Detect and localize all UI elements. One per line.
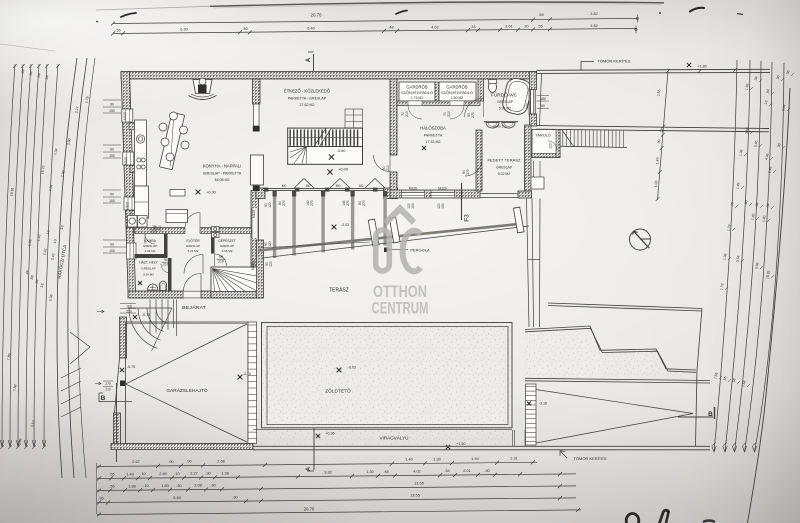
svg-text:M140 210: M140 210 [493,125,507,129]
svg-text:6.40: 6.40 [173,495,181,500]
svg-text:270: 270 [362,200,366,206]
svg-text:1.30: 1.30 [433,456,441,461]
svg-text:+0.00: +0.00 [338,167,349,172]
svg-text:3.00: 3.00 [66,138,71,145]
svg-text:.94: .94 [766,89,771,94]
svg-text:M100: M100 [124,157,128,165]
svg-text:.35: .35 [98,496,103,501]
svg-text:2.40: 2.40 [159,471,167,476]
svg-text:1.43: 1.43 [36,234,41,241]
svg-text:1.49: 1.49 [655,157,660,164]
svg-text:TÖMÖR KERÍTÉS: TÖMÖR KERÍTÉS [597,59,630,64]
svg-text:.30: .30 [777,143,782,148]
svg-text:M120: M120 [409,186,418,190]
svg-text:-0.02: -0.02 [341,223,349,227]
svg-text:KAMRA: KAMRA [144,239,157,243]
svg-text:.30: .30 [205,471,211,476]
svg-text:-0.75: -0.75 [142,313,150,317]
svg-text:1.38: 1.38 [738,149,743,156]
svg-text:.34: .34 [45,75,50,81]
svg-text:.30: .30 [232,494,238,499]
svg-text:M100: M100 [123,112,127,120]
svg-text:GARÁZSLEHAJTÓ: GARÁZSLEHAJTÓ [166,387,208,394]
svg-text:B: B [708,411,713,418]
svg-text:2.64: 2.64 [781,104,786,111]
svg-text:.30: .30 [210,483,216,488]
svg-text:.34: .34 [470,25,475,29]
svg-text:210: 210 [447,111,451,117]
svg-text:.55: .55 [109,484,114,489]
svg-text:.34: .34 [766,203,771,208]
svg-text:M0: M0 [282,184,287,188]
svg-text:.34: .34 [755,202,760,207]
svg-text:6.30: 6.30 [180,28,187,32]
svg-text:1.38: 1.38 [221,470,229,475]
svg-text:1.40: 1.40 [761,215,766,222]
svg-text:120: 120 [269,261,273,267]
svg-text:GÉPÉSZET: GÉPÉSZET [218,238,236,243]
svg-text:2.08: 2.08 [194,483,202,488]
svg-text:20.70: 20.70 [311,13,323,18]
svg-text:2.27: 2.27 [190,471,198,476]
svg-text:-0.02: -0.02 [348,366,356,370]
svg-text:CENTRUM: CENTRUM [372,300,429,318]
svg-text:VIRÁGVÁLYÚ: VIRÁGVÁLYÚ [379,435,408,441]
svg-text:16.72: 16.72 [40,165,45,174]
svg-text:4.02: 4.02 [431,25,438,29]
svg-text:270: 270 [282,200,286,206]
svg-text:.10: .10 [53,239,58,245]
svg-text:A: A [306,466,312,471]
svg-text:M0: M0 [306,184,311,188]
svg-text:.48: .48 [383,469,388,474]
svg-text:1.43: 1.43 [126,471,134,476]
svg-text:270: 270 [466,169,470,175]
svg-text:.34: .34 [37,73,42,79]
svg-text:M0: M0 [336,184,341,188]
svg-text:210: 210 [163,263,169,267]
svg-text:.12: .12 [659,128,663,133]
svg-text:3.82: 3.82 [324,469,332,474]
svg-text:M120: M120 [252,210,256,218]
svg-text:270: 270 [471,112,475,118]
svg-text:90: 90 [110,243,114,247]
svg-text:.58: .58 [732,378,737,383]
svg-text:120: 120 [268,241,272,247]
svg-text:210: 210 [549,143,553,149]
svg-text:.90: .90 [168,459,174,464]
svg-text:150: 150 [109,249,115,253]
svg-text:90: 90 [110,193,114,197]
svg-text:.30: .30 [484,468,490,473]
svg-text:3.59: 3.59 [744,127,749,134]
svg-text:2.67: 2.67 [132,459,140,464]
svg-text:GARDRÓB: GARDRÓB [446,85,467,90]
svg-text:150: 150 [411,203,415,209]
svg-text:2.27: 2.27 [74,106,79,113]
svg-text:OTTHON: OTTHON [373,283,427,301]
svg-text:1.38: 1.38 [722,253,727,260]
svg-text:5.02 M2: 5.02 M2 [498,172,510,176]
svg-text:2.90: 2.90 [60,170,65,177]
svg-text:F3: F3 [464,214,471,222]
svg-text:TERASZ: TERASZ [329,288,349,294]
svg-text:60: 60 [541,104,545,108]
svg-text:27.62 M2: 27.62 M2 [300,103,315,107]
svg-text:ZÖLDTETŐ: ZÖLDTETŐ [325,388,351,395]
svg-text:7.58: 7.58 [741,380,746,387]
svg-text:.10: .10 [140,471,146,476]
svg-text:+1.80: +1.80 [697,65,707,69]
svg-text:210: 210 [158,225,162,231]
svg-text:PERGOLA: PERGOLA [410,248,430,253]
svg-text:GRESLAP: GRESLAP [141,267,155,271]
svg-text:.18: .18 [40,283,45,289]
svg-text:5.54: 5.54 [735,255,740,262]
svg-text:18.91: 18.91 [9,187,14,196]
svg-text:270: 270 [346,200,350,206]
svg-text:170: 170 [525,103,529,108]
svg-text:GRESLAP: GRESLAP [186,244,200,248]
svg-text:M120: M120 [438,186,447,190]
svg-text:ÉTKEZŐ - KÖZLEKEDŐ: ÉTKEZŐ - KÖZLEKEDŐ [284,89,331,94]
svg-text:BEJÁRAT: BEJÁRAT [182,304,206,311]
svg-text:SZŐNYEGPADLÓ: SZŐNYEGPADLÓ [441,90,473,95]
svg-text:.90: .90 [657,139,661,144]
svg-text:3.10: 3.10 [30,420,35,427]
svg-text:.34: .34 [754,76,759,81]
svg-text:.88: .88 [30,275,35,281]
svg-text:.55: .55 [723,376,728,381]
svg-text:7.55: 7.55 [713,372,718,379]
svg-text:150: 150 [441,203,445,209]
svg-text:90: 90 [110,103,114,107]
svg-text:+0.36: +0.36 [325,432,334,436]
svg-text:FEDETT TERASZ: FEDETT TERASZ [488,159,522,163]
svg-text:210: 210 [405,111,409,117]
svg-text:.55: .55 [538,13,543,17]
svg-text:90: 90 [164,258,168,262]
svg-text:HÁZT. HELY: HÁZT. HELY [139,261,158,265]
svg-text:.34: .34 [21,69,26,75]
svg-text:GRESLAP: GRESLAP [143,244,157,248]
svg-text:GRESLAP: GRESLAP [220,244,234,248]
svg-text:.30: .30 [176,483,182,488]
svg-text:.44: .44 [25,270,30,276]
svg-text:1.86: 1.86 [27,239,32,246]
svg-text:M120: M120 [252,259,256,267]
svg-text:3.38: 3.38 [48,294,53,301]
svg-text:3.43: 3.43 [50,253,55,260]
svg-text:2.02 M2: 2.02 M2 [145,249,156,253]
svg-text:7.34: 7.34 [53,148,58,155]
svg-text:2.31: 2.31 [510,456,518,461]
svg-text:M100: M100 [126,202,130,210]
svg-text:GRESLAP - PARKETTA: GRESLAP - PARKETTA [203,172,242,176]
svg-text:GRESLAP: GRESLAP [497,100,514,104]
svg-text:.34: .34 [35,279,40,285]
svg-text:7.88: 7.88 [12,384,17,391]
svg-text:-3.50: -3.50 [337,148,347,153]
svg-text:18.95: 18.95 [765,270,770,279]
svg-text:4.02: 4.02 [413,469,421,474]
svg-text:6.40: 6.40 [307,27,314,31]
svg-text:3.94 M2: 3.94 M2 [222,249,233,253]
svg-text:B: B [101,395,106,402]
svg-text:210: 210 [105,388,111,392]
svg-text:KONYHA - NAPPALI: KONYHA - NAPPALI [203,164,242,169]
svg-text:+0.00: +0.00 [206,191,216,195]
svg-text:.10: .10 [60,225,65,231]
svg-text:.55: .55 [115,28,120,32]
svg-text:GRESLAP: GRESLAP [496,166,513,170]
svg-text:3.82: 3.82 [590,12,597,16]
svg-text:150: 150 [109,109,115,113]
svg-text:90: 90 [110,148,114,152]
svg-text:2.68: 2.68 [217,458,225,463]
svg-text:20.70: 20.70 [304,507,315,512]
svg-text:.30: .30 [776,75,781,80]
svg-text:2.42: 2.42 [42,248,47,255]
svg-text:2.46: 2.46 [767,166,772,173]
svg-text:.55: .55 [537,24,542,28]
svg-text:1.79: 1.79 [719,283,724,290]
svg-text:SZŐNYEGPADLÓ: SZŐNYEGPADLÓ [401,90,433,95]
svg-text:1.40: 1.40 [750,213,755,220]
svg-text:ELŐTÉR: ELŐTÉR [186,238,200,243]
svg-text:4.36: 4.36 [764,153,769,160]
svg-text:1.65: 1.65 [744,83,749,90]
svg-text:M0: M0 [359,184,364,188]
svg-text:2.55: 2.55 [657,89,662,96]
svg-text:210: 210 [218,260,224,264]
svg-text:PARKETTA: PARKETTA [424,134,443,138]
svg-text:1.40: 1.40 [405,457,413,462]
svg-text:.55: .55 [109,472,114,477]
svg-text:.90: .90 [186,459,192,464]
svg-text:90: 90 [219,255,223,259]
svg-text:1.83: 1.83 [128,483,136,488]
svg-text:13.55: 13.55 [414,481,424,486]
svg-text:.30: .30 [744,200,749,205]
svg-text:-3.18: -3.18 [539,402,547,406]
svg-text:GARDRÓB: GARDRÓB [406,85,427,90]
svg-text:5.21 M2: 5.21 M2 [188,249,199,253]
svg-text:13.55: 13.55 [410,493,420,498]
svg-text:5.89: 5.89 [17,438,22,445]
svg-text:2.01: 2.01 [463,468,471,473]
svg-text:1.45: 1.45 [735,182,740,189]
svg-text:-0.75: -0.75 [243,372,250,376]
svg-text:1.73 M2: 1.73 M2 [411,96,423,100]
svg-text:TÖMÖR KERÍTÉS: TÖMÖR KERÍTÉS [573,456,606,461]
svg-text:7.34: 7.34 [48,184,53,191]
svg-text:+1.50: +1.50 [456,442,465,446]
svg-text:TÁROLÓ: TÁROLÓ [535,133,551,138]
svg-text:.48: .48 [388,26,393,30]
svg-text:2.79: 2.79 [84,96,89,103]
svg-text:.10: .10 [174,471,180,476]
svg-text:270: 270 [105,382,111,386]
svg-text:RÁKÓCZI UTCA: RÁKÓCZI UTCA [56,243,68,279]
svg-text:-0.75: -0.75 [127,365,135,369]
svg-text:3.82: 3.82 [590,24,597,28]
svg-text:150: 150 [109,199,115,203]
svg-text:17.53 M2: 17.53 M2 [426,140,441,144]
svg-text:46.08 M2: 46.08 M2 [215,178,230,182]
svg-text:1.30: 1.30 [366,469,374,474]
svg-text:.34: .34 [444,468,450,473]
svg-text:.34: .34 [29,71,34,77]
svg-text:270: 270 [310,200,314,206]
svg-text:1.94: 1.94 [471,456,479,461]
svg-text:.48: .48 [730,202,735,207]
svg-text:.30: .30 [242,27,247,31]
svg-text:3.34 M2: 3.34 M2 [143,273,154,277]
svg-text:180: 180 [540,97,546,101]
svg-text:120: 120 [268,202,272,208]
svg-text:1.80 M2: 1.80 M2 [451,96,463,100]
svg-text:1.80: 1.80 [161,483,169,488]
svg-text:3.96: 3.96 [754,262,759,269]
svg-text:HÁLÓSZOBA: HÁLÓSZOBA [420,126,446,131]
svg-text:.10: .10 [46,230,51,236]
svg-text:210: 210 [386,165,390,171]
svg-text:.10: .10 [764,100,769,105]
svg-text:2.01: 2.01 [505,25,512,29]
svg-text:5.40: 5.40 [753,140,758,147]
svg-text:5.31 M2: 5.31 M2 [499,107,511,111]
svg-text:PARKETTA - GRESLAP: PARKETTA - GRESLAP [288,97,327,101]
svg-text:A: A [306,57,312,62]
svg-text:150: 150 [109,154,115,158]
svg-text:.30: .30 [786,70,791,75]
svg-text:FÜRDŐ-WC: FÜRDŐ-WC [491,92,518,98]
svg-text:.30: .30 [523,25,528,29]
svg-text:1.00: 1.00 [654,180,659,187]
svg-text:.10: .10 [143,483,149,488]
